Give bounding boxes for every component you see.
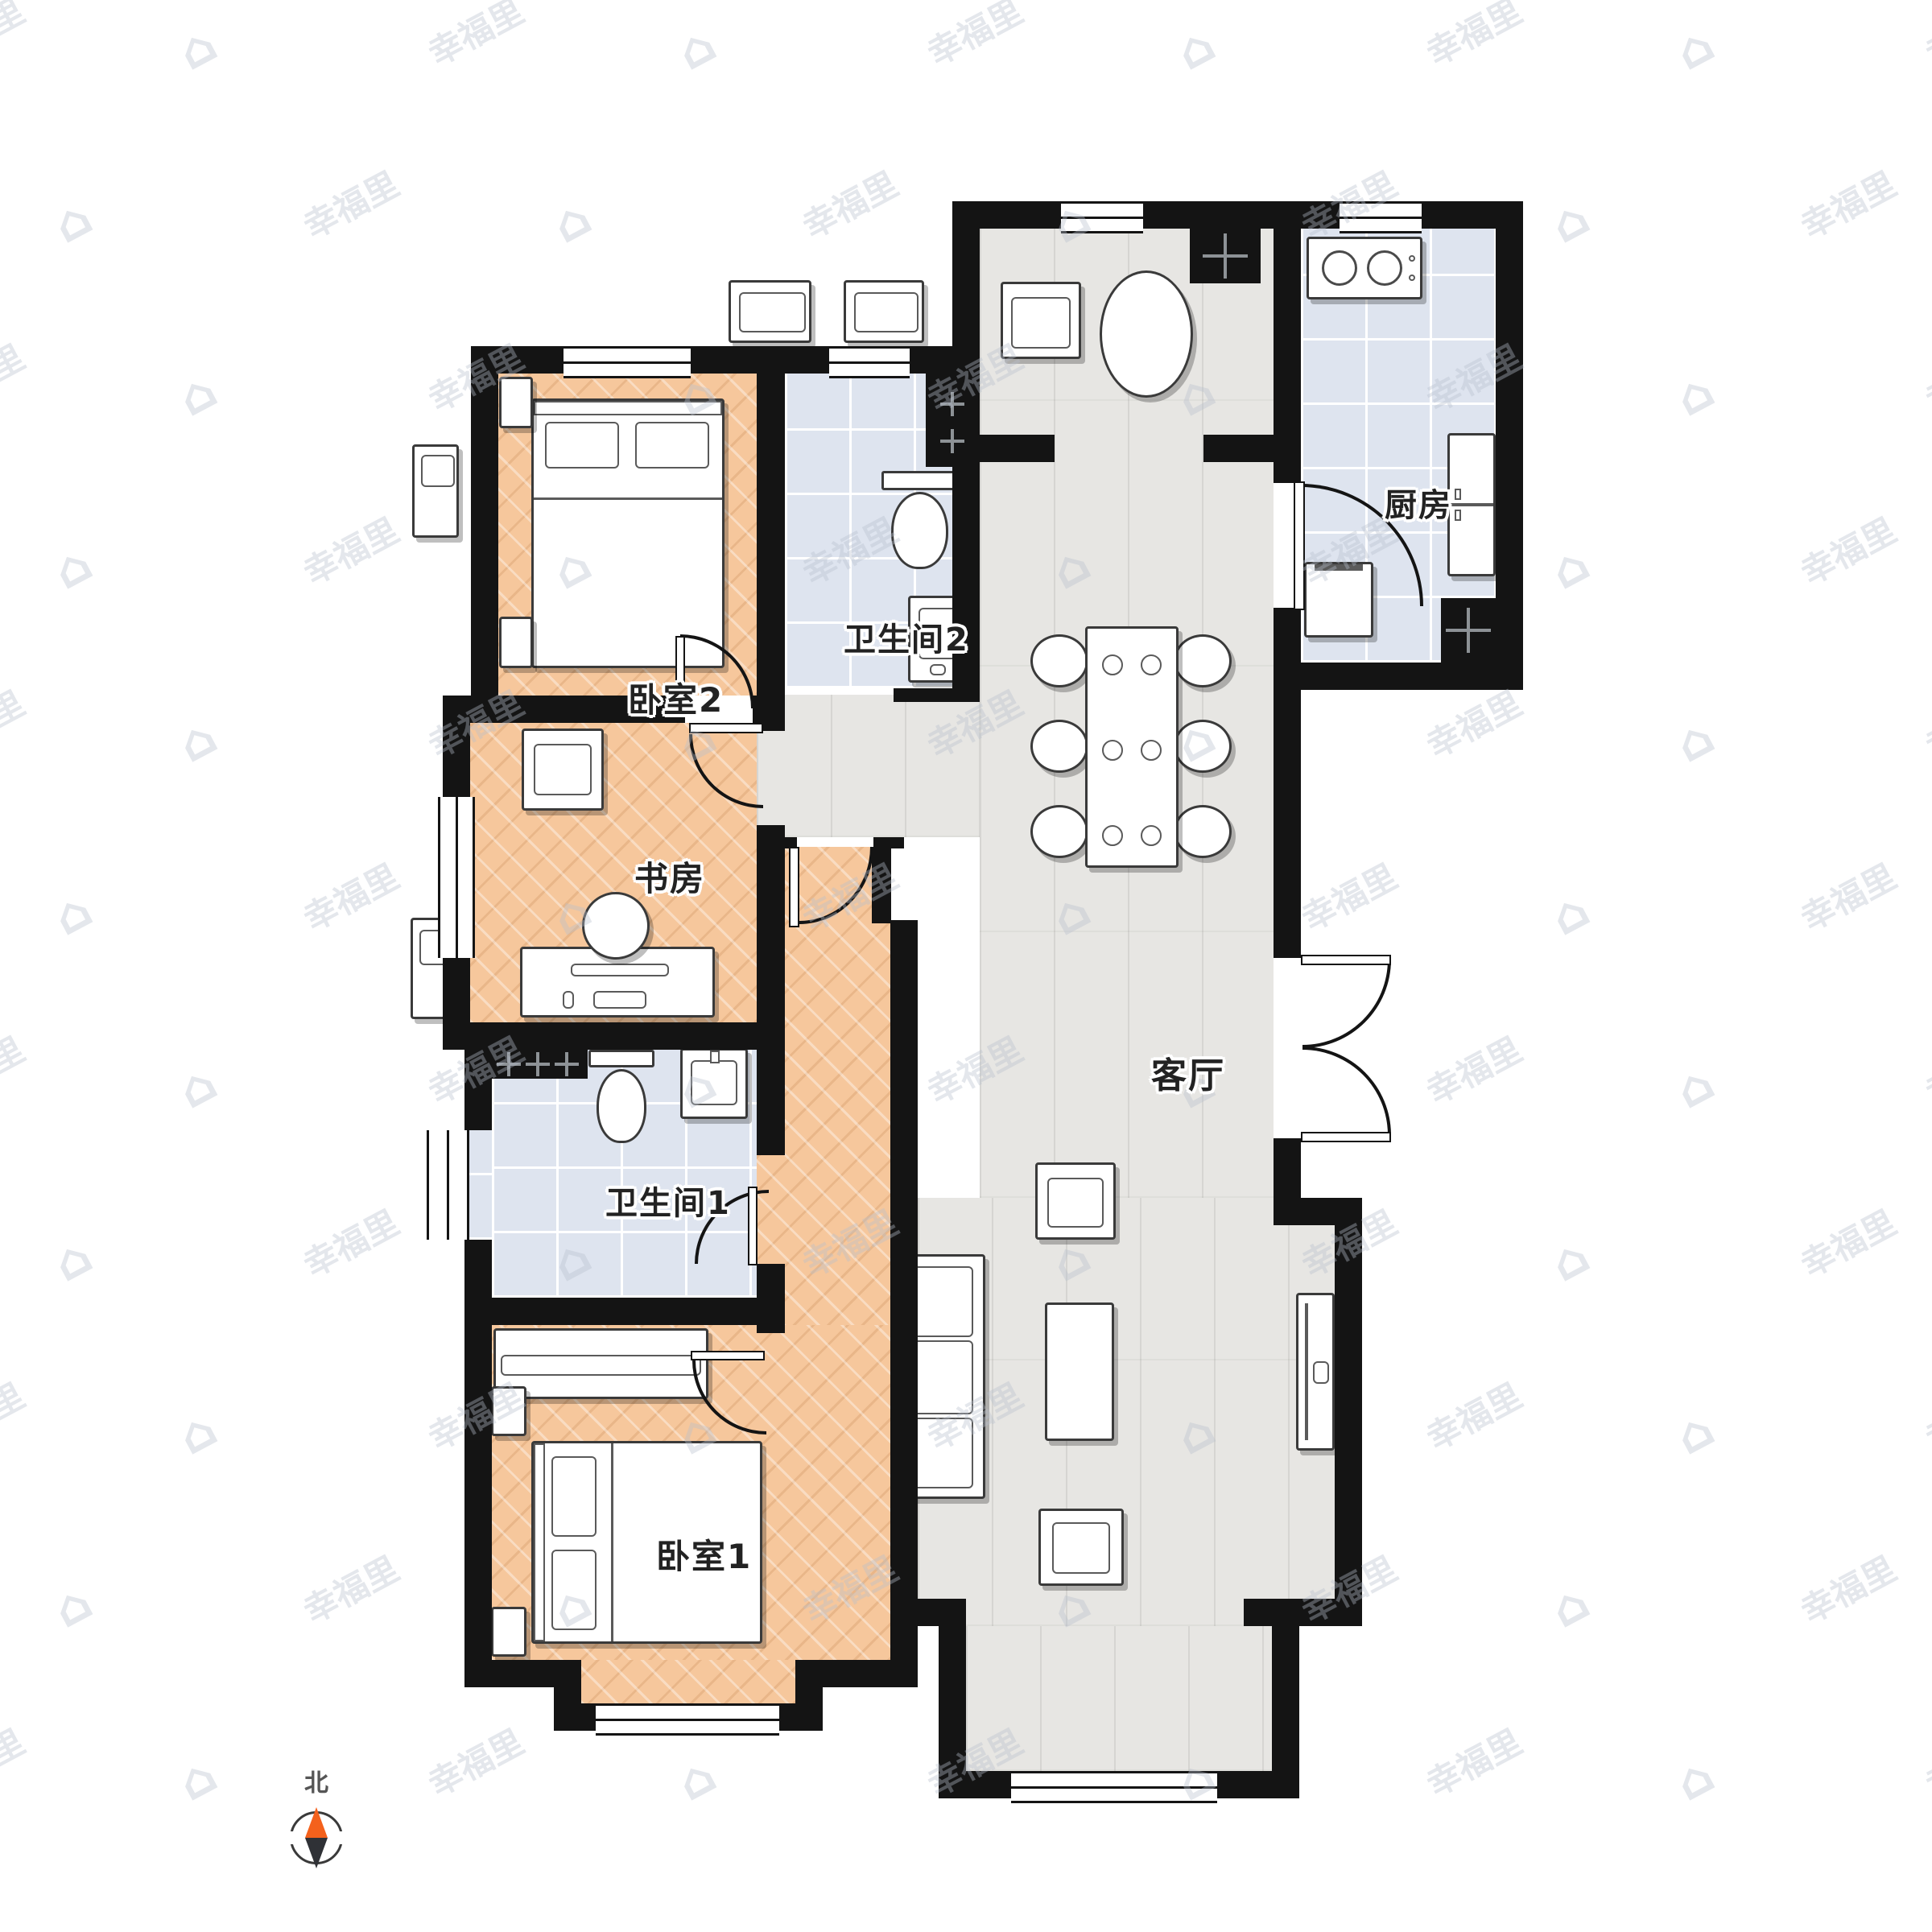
shaft-cross-0-v (1224, 233, 1227, 279)
wall-51 (939, 1626, 966, 1798)
bedroom1-nightstand-1 (491, 1386, 526, 1436)
dining-armchair (1001, 282, 1081, 359)
wall-32 (1143, 201, 1340, 229)
living-armchair-1-part-0 (1047, 1178, 1104, 1228)
living-sofa-part-1 (910, 1340, 973, 1414)
kitchen-stove-part-0 (1322, 250, 1357, 286)
wall-39 (1274, 229, 1301, 483)
ac-unit-1 (412, 444, 459, 538)
bathroom1-sink-part-1 (710, 1051, 720, 1063)
living-armchair-2-part-0 (1052, 1522, 1110, 1574)
balcony-armchair-2 (844, 280, 924, 343)
wall-46 (1244, 1599, 1362, 1626)
wall-12 (464, 1298, 785, 1325)
dining-round-table (1100, 270, 1193, 398)
dining-window (1061, 201, 1143, 233)
wall-22 (757, 1264, 785, 1333)
wall-3 (471, 346, 498, 723)
north-label: 北 (304, 1763, 328, 1798)
bedroom2-bed-part-3 (534, 497, 722, 500)
shaft-cross-5-v (951, 392, 954, 416)
study-desk-part-1 (593, 991, 646, 1009)
bedroom1-bed-part-1 (551, 1456, 597, 1537)
tv-stand (1296, 1293, 1335, 1451)
kitchen-stove-part-1 (1367, 250, 1402, 286)
bathroom1-sink-part-0 (691, 1060, 737, 1105)
dining-chair-5 (1174, 720, 1232, 773)
wall-38 (1301, 663, 1523, 690)
wall-28 (894, 688, 980, 702)
shaft-cross-2-v (507, 1052, 510, 1076)
bedroom2-window (563, 346, 691, 378)
bedroom1-bed-part-2 (551, 1550, 597, 1630)
bathroom1-toilet (588, 1050, 654, 1146)
dining-chair-2 (1030, 720, 1088, 773)
living-bay-floor (966, 1626, 1272, 1771)
wall-9 (443, 1022, 784, 1050)
dining-chair-6 (1174, 805, 1232, 858)
dining-chair-3 (1030, 805, 1088, 858)
living-armchair-1 (1035, 1162, 1116, 1240)
shaft-cross-4-v (565, 1052, 568, 1076)
bedroom2-nightstand-1 (499, 377, 533, 428)
wall-31 (952, 201, 1061, 229)
study-armchair (522, 729, 604, 811)
bathroom2-window (829, 346, 910, 378)
wall-42 (1274, 690, 1301, 958)
study-bay-window (438, 797, 475, 958)
kitchen-fridge-part-1 (1455, 489, 1461, 500)
dining-chair-4 (1174, 634, 1232, 687)
study-armchair-part-0 (534, 744, 592, 795)
compass-ring-gap-right (338, 1831, 346, 1844)
compass-ring-gap-left (287, 1831, 295, 1844)
bedroom2-bed-part-2 (635, 422, 709, 469)
bathroom1-bay-window (427, 1130, 469, 1240)
door-leaf-4 (691, 1351, 765, 1360)
living-coffee-table (1045, 1302, 1114, 1441)
kitchen-stove-part-2 (1409, 255, 1415, 262)
dining-table-part-0 (1102, 654, 1123, 675)
bathroom1-toilet-part-1 (597, 1069, 646, 1143)
dining-table-part-4 (1102, 825, 1123, 846)
wall-10 (464, 1050, 492, 1130)
shaft-cross-3-v (536, 1052, 539, 1076)
tv-stand-part-0 (1305, 1303, 1308, 1440)
wall-4 (757, 346, 785, 696)
wall-40 (1274, 608, 1301, 690)
balcony-armchair-2-part-0 (854, 292, 919, 332)
tv-stand-part-1 (1313, 1361, 1329, 1384)
living-sofa-part-0 (910, 1266, 973, 1337)
door-leaf-6 (1301, 955, 1391, 965)
kitchen-fridge-part-2 (1455, 510, 1461, 521)
bathroom1-toilet-part-0 (588, 1050, 654, 1067)
bathroom2-toilet (881, 471, 958, 574)
wall-7 (443, 696, 470, 797)
dining-table (1085, 626, 1179, 868)
bedroom1-bay-floor (581, 1660, 795, 1703)
floor-plan-canvas: 幸福里⌂幸福里⌂幸福里⌂幸福里⌂幸福里⌂幸福里⌂幸福里⌂幸福里⌂幸福里幸福里⌂幸… (0, 0, 1932, 1932)
corridor-bump-floor (757, 695, 980, 837)
kitchen-stove (1307, 237, 1422, 299)
bedroom1-bed-part-0 (534, 1443, 545, 1641)
compass (290, 1811, 343, 1864)
dining-chair-1 (1030, 634, 1088, 687)
wall-18 (554, 1703, 596, 1731)
bedroom2-nightstand-2 (499, 617, 533, 668)
wall-37 (1496, 201, 1523, 690)
bathroom2-toilet-part-1 (891, 492, 948, 569)
wall-30 (952, 211, 980, 462)
wall-35 (1203, 435, 1274, 462)
study-desk-part-2 (563, 991, 574, 1009)
wall-45 (1335, 1225, 1362, 1626)
wall-19 (779, 1703, 823, 1731)
bedroom1-nightstand-2 (491, 1607, 526, 1657)
dining-armchair-part-0 (1011, 297, 1071, 349)
bedroom2-bed-part-0 (534, 401, 722, 415)
door-leaf-5 (1294, 481, 1305, 610)
bedroom1-wardrobe-part-0 (501, 1355, 701, 1376)
wall-13 (464, 1325, 492, 1687)
wall-44 (1274, 1198, 1362, 1225)
compass-north-needle (305, 1807, 328, 1838)
door-leaf-2 (789, 847, 799, 927)
living-bay-window (1011, 1771, 1217, 1803)
wall-21 (757, 825, 785, 1155)
bathroom2-washer-part-1 (930, 664, 946, 675)
kitchen-window (1340, 201, 1422, 233)
dining-table-part-2 (1102, 740, 1123, 761)
balcony-armchair-1 (729, 280, 811, 343)
shaft-cross-6-v (951, 429, 954, 453)
kitchen-stove-part-3 (1409, 275, 1415, 281)
study-desk-part-0 (571, 964, 669, 976)
living-armchair-2 (1038, 1509, 1124, 1586)
bedroom1-bed-part-3 (611, 1443, 613, 1641)
wall-34 (980, 435, 1055, 462)
wall-26 (890, 920, 918, 1687)
dining-table-part-1 (1141, 654, 1162, 675)
wall-14 (464, 1660, 581, 1687)
door-leaf-7 (1301, 1132, 1391, 1142)
door-leaf-1 (689, 723, 763, 733)
bedroom2-bed (531, 398, 724, 668)
kitchen-fridge-part-0 (1450, 503, 1493, 506)
ac-unit-1-part-0 (421, 455, 455, 487)
bedroom1-bay-window (596, 1703, 779, 1736)
wall-25 (872, 847, 891, 923)
shaft-cross-1-v (1467, 608, 1470, 653)
study-chair (582, 892, 650, 960)
entry-door-arc-upper (1302, 960, 1391, 1048)
wall-49 (1217, 1771, 1299, 1798)
compass-south-needle (305, 1838, 328, 1868)
living-sofa-part-2 (910, 1418, 973, 1488)
dining-table-part-5 (1141, 825, 1162, 846)
bedroom2-bed-part-1 (545, 422, 619, 469)
door-leaf-3 (748, 1187, 758, 1265)
bathroom1-sink (680, 1048, 748, 1119)
bathroom2-toilet-part-0 (881, 471, 958, 490)
balcony-armchair-1-part-0 (739, 292, 806, 332)
dining-table-part-3 (1141, 740, 1162, 761)
wall-52 (890, 1599, 966, 1626)
entry-door-arc-lower (1302, 1046, 1391, 1135)
kitchen-fridge (1447, 433, 1496, 576)
